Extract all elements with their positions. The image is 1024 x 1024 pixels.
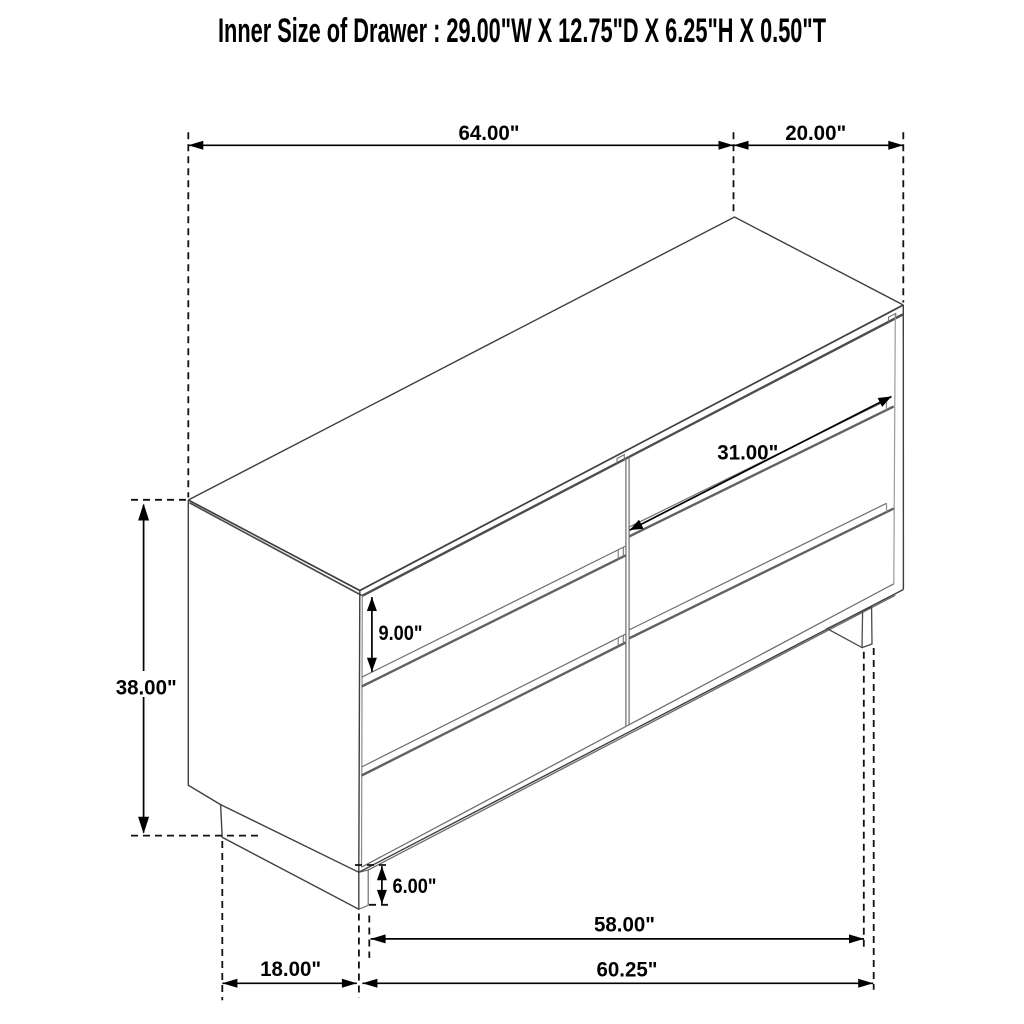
svg-text:60.25": 60.25"	[597, 957, 658, 981]
svg-text:20.00": 20.00"	[785, 121, 846, 145]
svg-text:6.00": 6.00"	[393, 874, 437, 898]
svg-text:Inner Size of Drawer : 29.00"W: Inner Size of Drawer : 29.00"W X 12.75"D…	[218, 12, 826, 50]
svg-text:58.00": 58.00"	[594, 913, 655, 937]
svg-text:64.00": 64.00"	[459, 121, 520, 145]
svg-text:31.00": 31.00"	[717, 441, 778, 465]
svg-text:9.00": 9.00"	[379, 621, 423, 645]
svg-text:18.00": 18.00"	[260, 957, 321, 981]
svg-text:38.00": 38.00"	[116, 675, 177, 699]
